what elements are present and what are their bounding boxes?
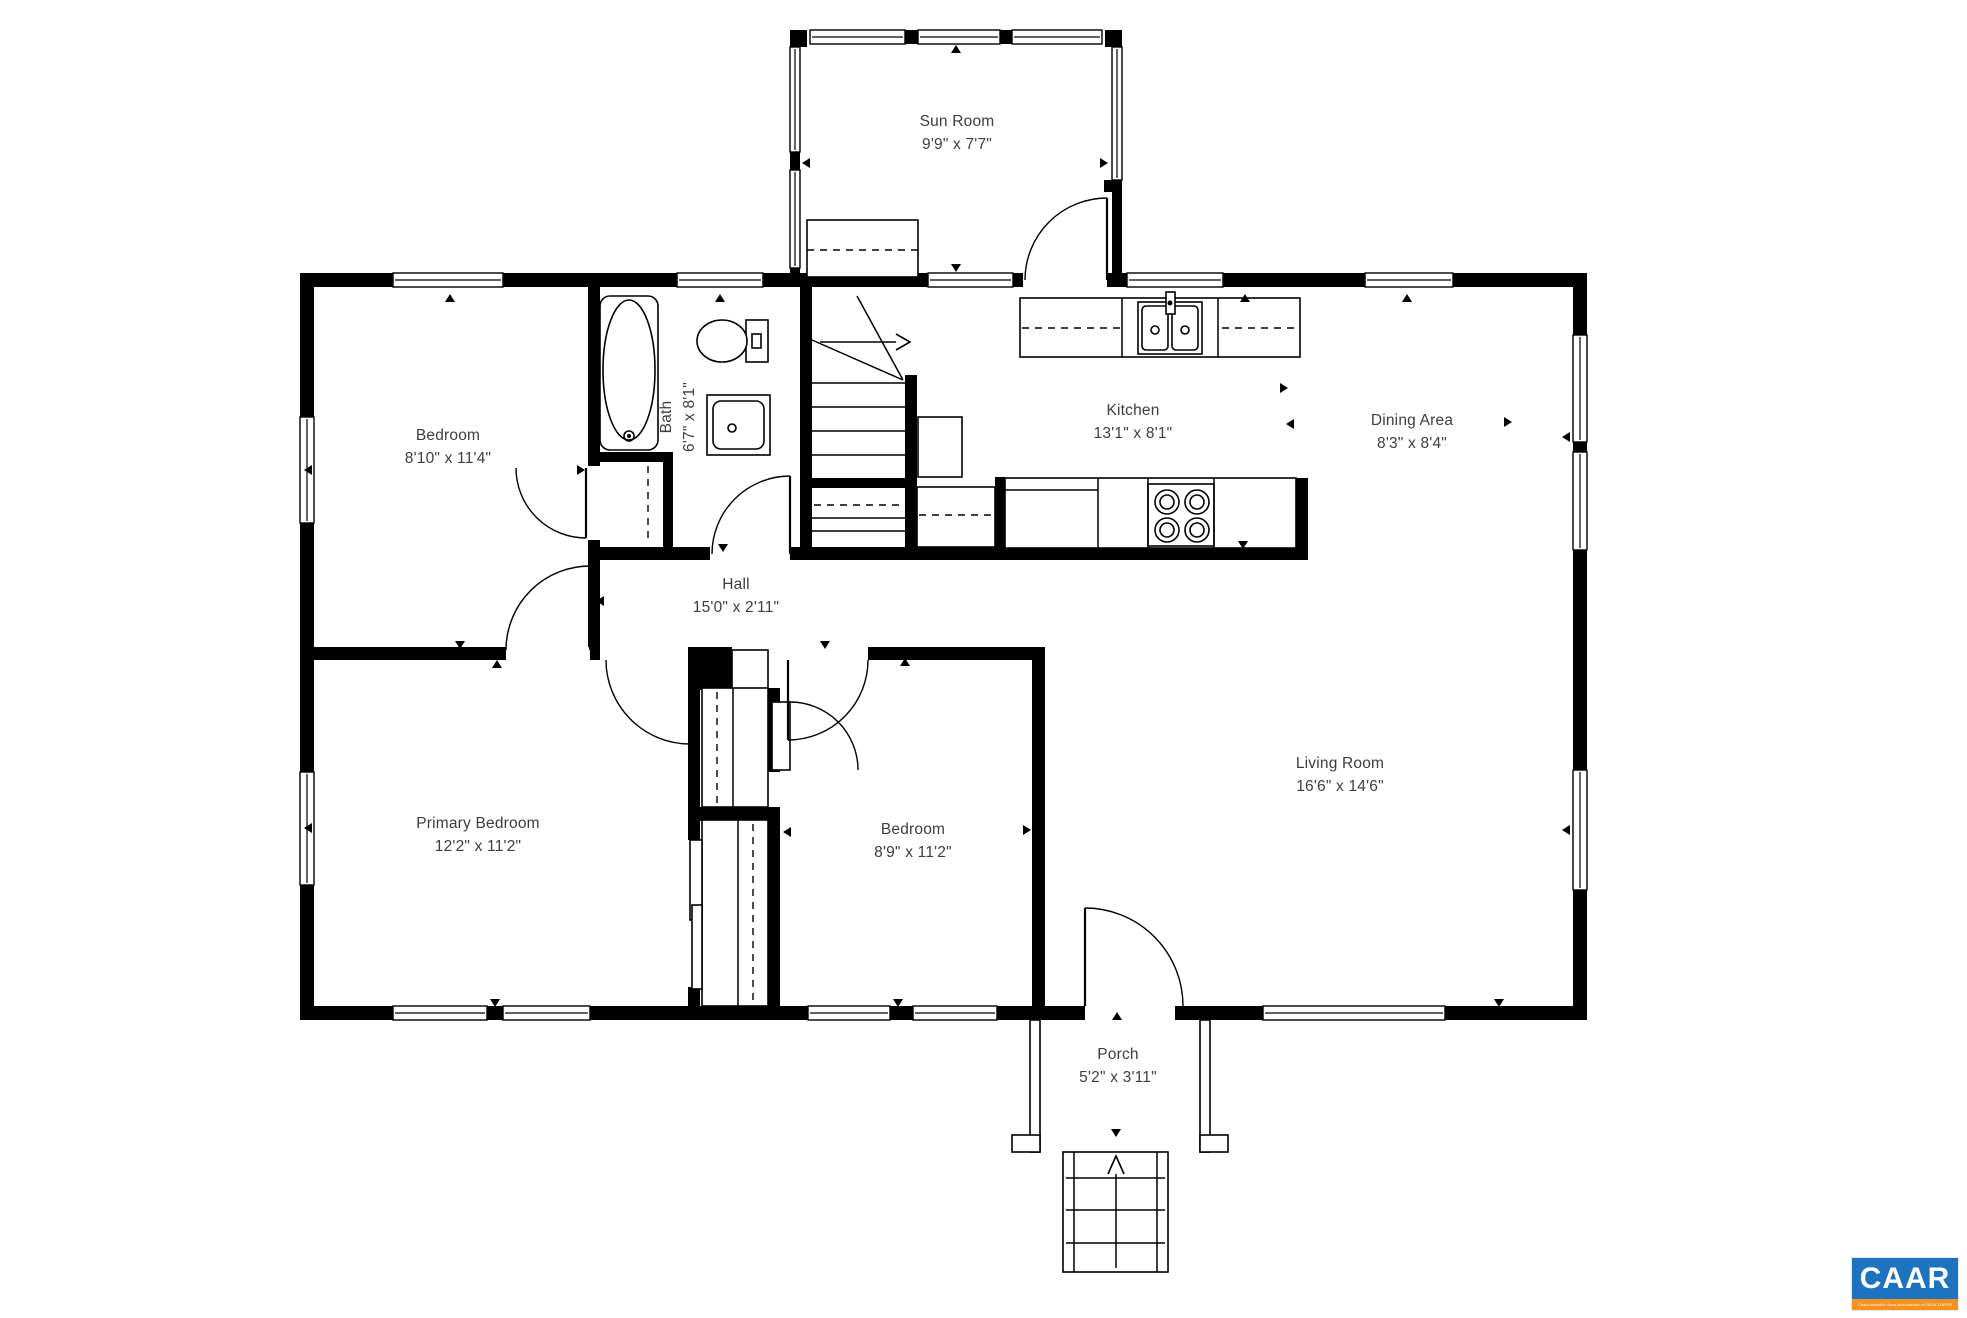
- marker-up: [445, 294, 455, 302]
- marker-right: [577, 465, 585, 475]
- room-label-kitchen: Kitchen13'1" x 8'1": [1094, 399, 1173, 445]
- room-label-living-room: Living Room16'6" x 14'6": [1296, 752, 1384, 798]
- wall: [1573, 442, 1587, 452]
- wall: [590, 547, 710, 560]
- door-bedroom-top-swing: [506, 566, 590, 650]
- room-dimensions: 8'3" x 8'4": [1371, 432, 1453, 455]
- marker-up: [951, 45, 961, 53]
- marker-left: [1562, 825, 1570, 835]
- closet-panel: [732, 650, 768, 690]
- slider-panel-2: [692, 905, 702, 989]
- wall: [790, 152, 800, 170]
- floor-plan-page: Sun Room9'9" x 7'7"Bedroom8'10" x 11'4"B…: [0, 0, 1967, 1318]
- wall: [790, 547, 1308, 560]
- wall: [1223, 273, 1365, 287]
- wall: [790, 30, 807, 47]
- marker-right: [1023, 825, 1031, 835]
- wall: [503, 273, 677, 287]
- wall: [868, 647, 1045, 660]
- wall: [1573, 550, 1587, 770]
- wall: [800, 287, 812, 560]
- marker-left: [802, 158, 810, 168]
- sink-bowl-right: [1172, 306, 1198, 350]
- marker-left: [1562, 432, 1570, 442]
- room-label-primary-bedroom: Primary Bedroom12'2" x 11'2": [416, 812, 540, 858]
- room-name: Porch: [1079, 1043, 1157, 1066]
- marker-right: [1280, 383, 1288, 393]
- wall: [905, 30, 918, 44]
- cabinet-under-stair: [917, 487, 995, 547]
- marker-down: [951, 264, 961, 272]
- wall: [790, 268, 800, 287]
- room-label-hall: Hall15'0" x 2'11": [693, 573, 779, 619]
- bath-sink-basin: [713, 401, 764, 449]
- room-label-bath: Bath6'7" x 8'1": [655, 382, 701, 452]
- marker-up: [1402, 294, 1412, 302]
- marker-down: [490, 999, 500, 1007]
- room-name: Bath: [655, 382, 678, 452]
- wall: [995, 477, 1005, 547]
- room-label-porch: Porch5'2" x 3'11": [1079, 1043, 1157, 1089]
- door-bath-swing: [712, 476, 790, 554]
- wall: [1453, 273, 1587, 287]
- room-name: Living Room: [1296, 752, 1384, 775]
- marker-down: [820, 641, 830, 649]
- room-name: Primary Bedroom: [416, 812, 540, 835]
- wall: [590, 1006, 808, 1020]
- wall: [300, 273, 314, 417]
- closet-lower: [702, 820, 768, 1006]
- porch-wall-left: [1030, 1020, 1040, 1152]
- wall: [1175, 1006, 1263, 1020]
- room-name: Hall: [693, 573, 779, 596]
- caar-logo-text: CAAR: [1852, 1258, 1958, 1299]
- marker-left: [783, 827, 791, 837]
- dot: [627, 434, 631, 438]
- room-name: Kitchen: [1094, 399, 1173, 422]
- marker-down: [1494, 999, 1504, 1007]
- marker-down: [718, 544, 728, 552]
- wall: [1000, 30, 1012, 44]
- room-dimensions: 8'10" x 11'4": [405, 447, 491, 470]
- refrigerator: [918, 417, 962, 477]
- caar-logo: CAAR Charlottesville Area Association of…: [1852, 1258, 1958, 1310]
- toilet-flush: [752, 334, 761, 348]
- wall: [1296, 478, 1308, 547]
- room-label-bedroom-bottom: Bedroom8'9" x 11'2": [874, 818, 952, 864]
- wall: [300, 647, 506, 660]
- room-name: Bedroom: [405, 424, 491, 447]
- wall: [1573, 273, 1587, 335]
- bathtub-basin: [603, 300, 655, 440]
- wall: [588, 287, 600, 466]
- room-dimensions: 16'6" x 14'6": [1296, 775, 1384, 798]
- porch-wall-right: [1200, 1020, 1210, 1152]
- marker-left: [1286, 419, 1294, 429]
- door-primary-bedroom-swing: [606, 660, 690, 744]
- marker-down: [1111, 1129, 1121, 1137]
- door-bedroom-bottom-swing: [788, 660, 868, 740]
- room-name: Dining Area: [1371, 409, 1453, 432]
- wall: [997, 1006, 1085, 1020]
- wall: [812, 478, 905, 488]
- wall: [1032, 647, 1045, 1006]
- wall: [1105, 30, 1122, 47]
- wall: [663, 462, 673, 547]
- floor-plan-drawing: [0, 0, 1967, 1318]
- marker-up: [1112, 1012, 1122, 1020]
- room-name: Bedroom: [874, 818, 952, 841]
- room-dimensions: 6'7" x 8'1": [678, 382, 701, 452]
- room-dimensions: 12'2" x 11'2": [416, 835, 540, 858]
- dot: [1168, 301, 1173, 306]
- marker-down: [893, 999, 903, 1007]
- marker-right: [1100, 158, 1108, 168]
- wall: [905, 375, 917, 560]
- wall: [592, 452, 673, 462]
- room-dimensions: 8'9" x 11'2": [874, 841, 952, 864]
- room-dimensions: 5'2" x 3'11": [1079, 1066, 1157, 1089]
- wall: [1107, 273, 1127, 287]
- wall: [1573, 890, 1587, 1020]
- room-name: Sun Room: [920, 110, 995, 133]
- porch-footer-right: [1200, 1135, 1228, 1152]
- room-dimensions: 9'9" x 7'7": [920, 133, 995, 156]
- porch-footer-left: [1012, 1135, 1040, 1152]
- detail-line: [812, 340, 903, 380]
- stair-up-arrow-head: [896, 334, 910, 350]
- wall: [1013, 273, 1023, 287]
- room-dimensions: 15'0" x 2'11": [693, 596, 779, 619]
- marker-up: [715, 294, 725, 302]
- room-label-bedroom-top: Bedroom8'10" x 11'4": [405, 424, 491, 470]
- marker-up: [492, 660, 502, 668]
- wall: [688, 987, 700, 1006]
- wall: [590, 647, 600, 660]
- wall: [768, 820, 780, 1006]
- wall: [890, 1006, 913, 1020]
- wall: [1445, 1006, 1587, 1020]
- room-dimensions: 13'1" x 8'1": [1094, 422, 1173, 445]
- wall: [688, 807, 780, 821]
- caar-logo-subtext: Charlottesville Area Association of REAL…: [1852, 1299, 1958, 1310]
- toilet-bowl: [697, 320, 747, 362]
- sunroom-cabinet: [807, 220, 918, 277]
- marker-right: [1504, 417, 1512, 427]
- room-label-sun-room: Sun Room9'9" x 7'7": [920, 110, 995, 156]
- sink-bowl-left: [1142, 306, 1168, 350]
- door-front-entry-swing: [1085, 908, 1183, 1006]
- wall: [487, 1006, 503, 1020]
- door-sunroom-swing: [1025, 198, 1107, 280]
- wall: [300, 885, 314, 1020]
- closet-upper: [702, 688, 768, 807]
- room-label-dining-area: Dining Area8'3" x 8'4": [1371, 409, 1453, 455]
- door-bedroom-closet-swing: [516, 468, 586, 538]
- wall: [1104, 180, 1122, 192]
- wall: [1112, 180, 1122, 273]
